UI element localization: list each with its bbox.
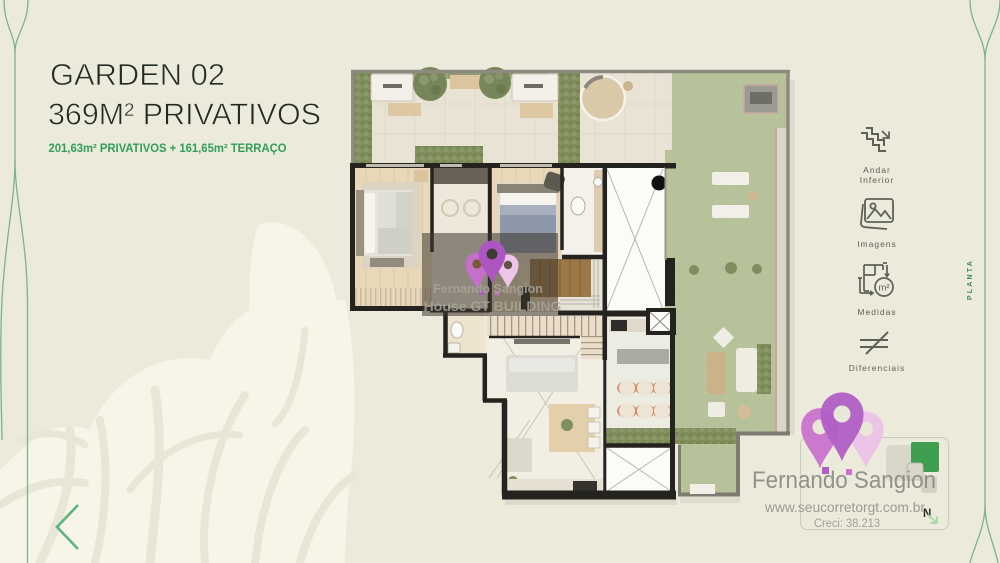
svg-text:N: N	[923, 508, 931, 520]
svg-text:Fernando Sangion: Fernando Sangion	[752, 467, 936, 494]
svg-text:www.seucorretorgt.com.br: www.seucorretorgt.com.br	[764, 500, 926, 515]
svg-text:Creci: 38.213: Creci: 38.213	[814, 518, 880, 530]
